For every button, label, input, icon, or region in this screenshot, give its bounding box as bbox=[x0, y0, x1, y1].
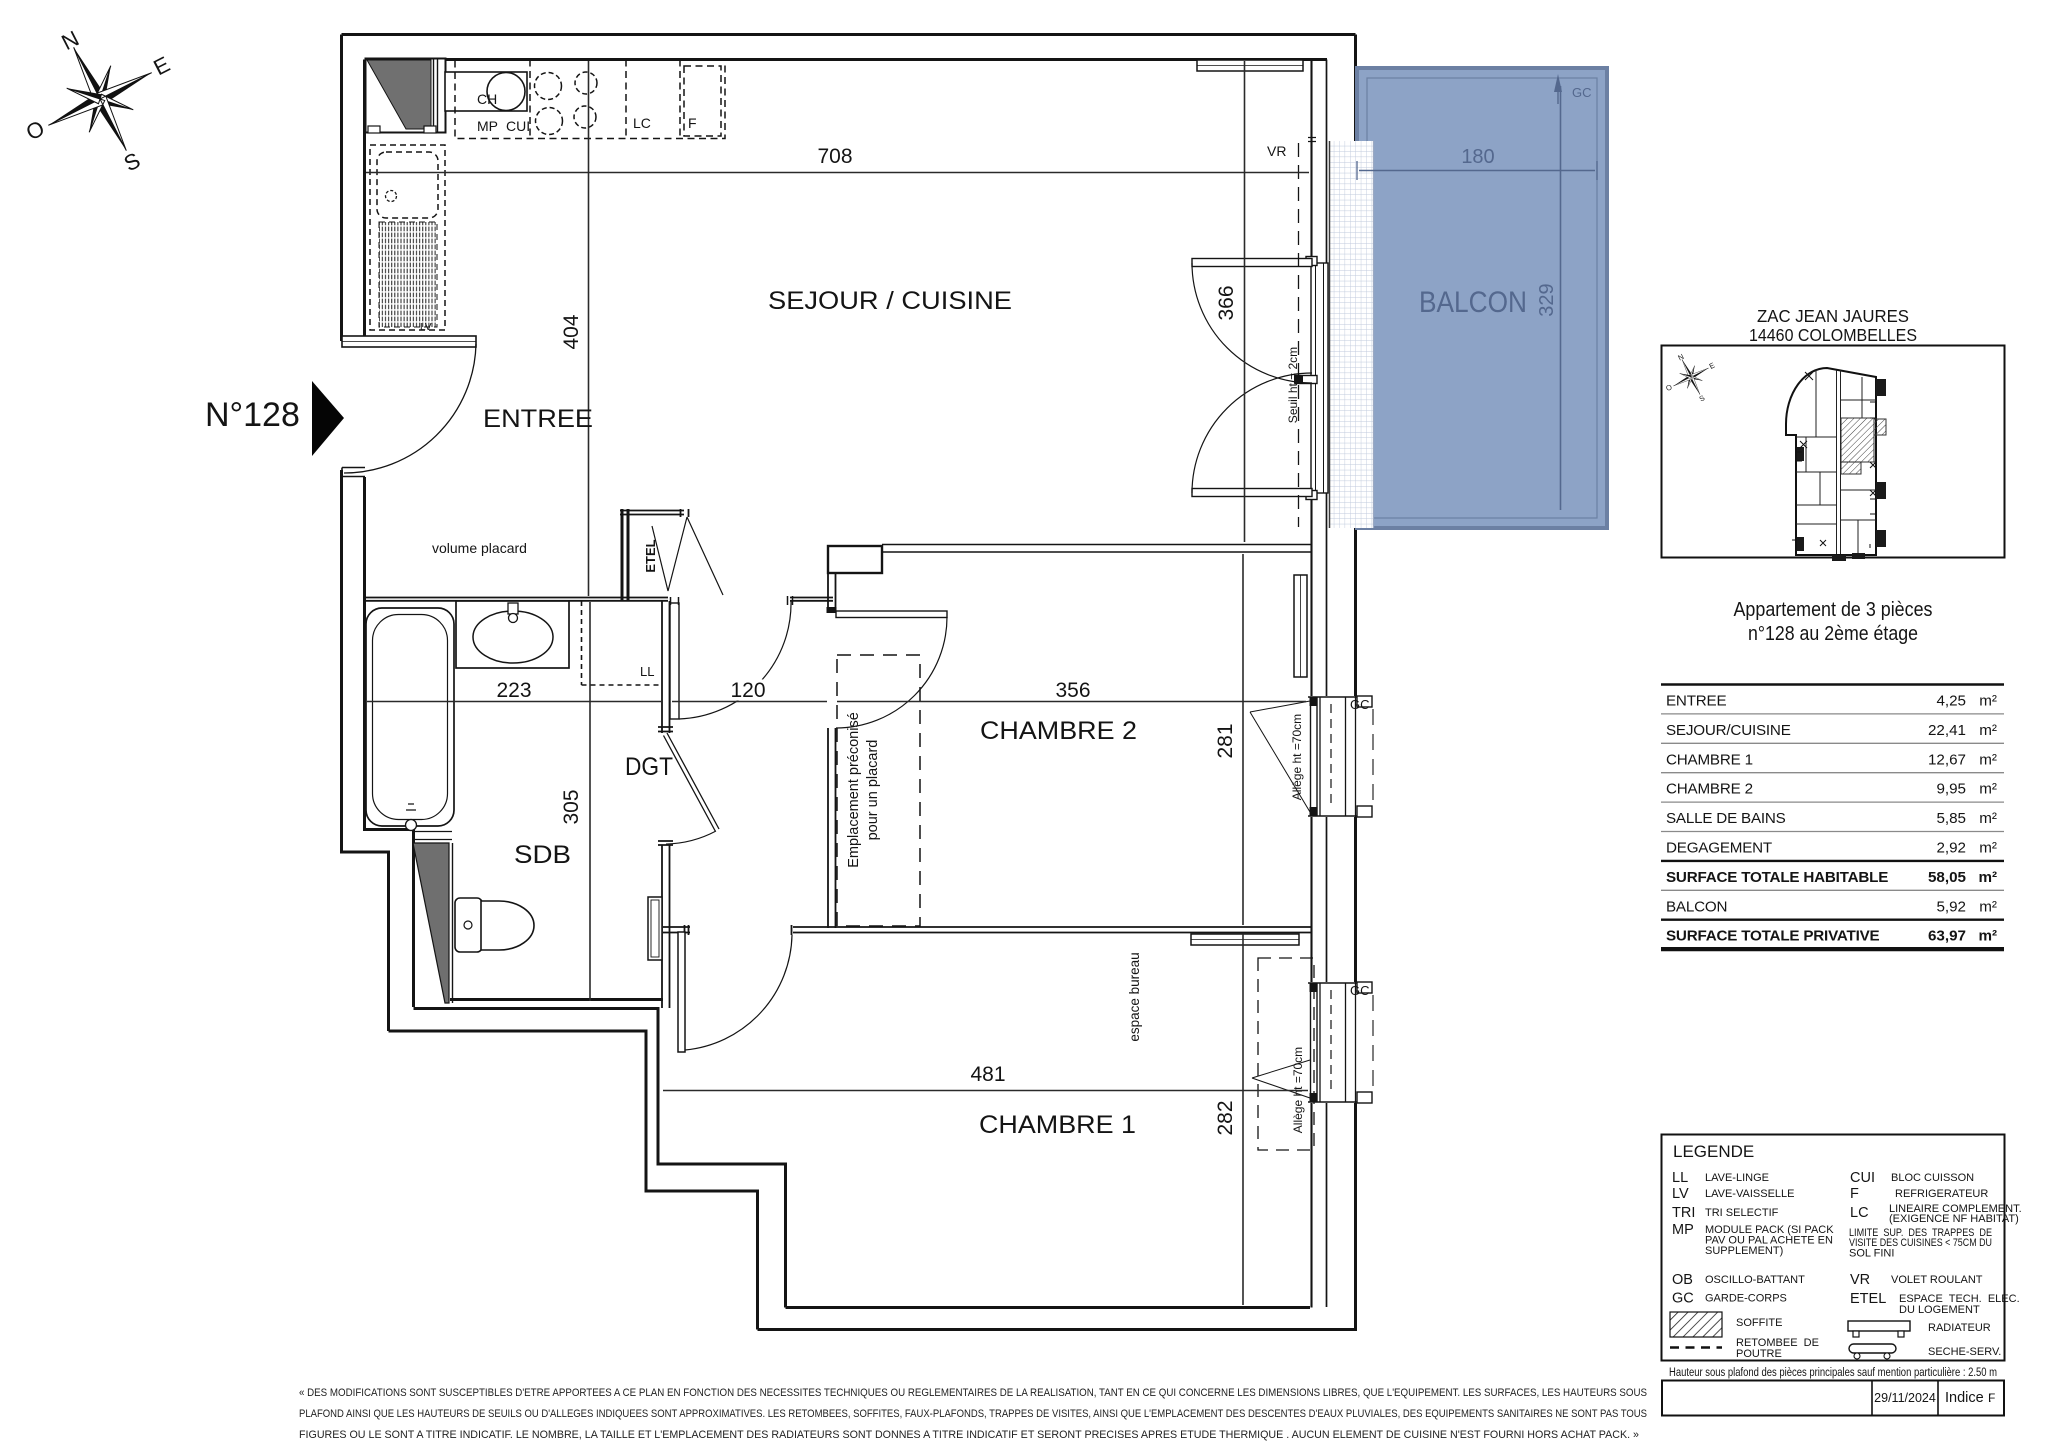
svg-text:180: 180 bbox=[1461, 146, 1494, 168]
svg-text:SURFACE TOTALE HABITABLE: SURFACE TOTALE HABITABLE bbox=[1666, 869, 1888, 886]
svg-text:POUTRE: POUTRE bbox=[1736, 1348, 1782, 1360]
svg-text:VOLET ROULANT: VOLET ROULANT bbox=[1891, 1274, 1983, 1286]
svg-text:ZAC JEAN JAURES: ZAC JEAN JAURES bbox=[1757, 306, 1909, 326]
svg-text:m²: m² bbox=[1979, 810, 1997, 827]
svg-text:pour un placard: pour un placard bbox=[865, 740, 881, 841]
svg-text:SOL FINI: SOL FINI bbox=[1849, 1248, 1894, 1260]
svg-text:29/11/2024: 29/11/2024 bbox=[1874, 1391, 1936, 1405]
svg-text:CH: CH bbox=[477, 91, 497, 107]
svg-text:LC: LC bbox=[633, 115, 651, 131]
svg-text:305: 305 bbox=[560, 789, 583, 824]
svg-text:SOFFITE: SOFFITE bbox=[1736, 1317, 1782, 1329]
svg-text:volume placard: volume placard bbox=[432, 540, 527, 556]
svg-text:GC: GC bbox=[1350, 697, 1370, 712]
svg-text:VR: VR bbox=[1267, 143, 1286, 159]
svg-text:58,05: 58,05 bbox=[1928, 869, 1967, 886]
svg-text:GARDE-CORPS: GARDE-CORPS bbox=[1705, 1293, 1787, 1305]
svg-text:FIGURES OU LE SONT A TITRE IND: FIGURES OU LE SONT A TITRE INDICATIF. LE… bbox=[299, 1429, 1639, 1441]
svg-text:14460 COLOMBELLES: 14460 COLOMBELLES bbox=[1749, 325, 1917, 345]
svg-text:Indice :: Indice : bbox=[1945, 1390, 1992, 1406]
svg-text:DU LOGEMENT: DU LOGEMENT bbox=[1899, 1304, 1980, 1316]
svg-text:GC: GC bbox=[1672, 1291, 1694, 1307]
svg-text:ETEL: ETEL bbox=[1850, 1291, 1886, 1307]
svg-text:LEGENDE: LEGENDE bbox=[1673, 1142, 1754, 1161]
svg-text:« DES MODIFICATIONS SONT SUSCE: « DES MODIFICATIONS SONT SUSCEPTIBLES D'… bbox=[299, 1387, 1647, 1399]
svg-text:MP: MP bbox=[477, 118, 498, 134]
svg-text:Appartement de 3 pièces: Appartement de 3 pièces bbox=[1734, 598, 1933, 621]
svg-text:BALCON: BALCON bbox=[1666, 898, 1727, 915]
svg-text:281: 281 bbox=[1214, 723, 1237, 758]
svg-text:63,97: 63,97 bbox=[1928, 928, 1966, 945]
svg-text:VR: VR bbox=[1850, 1272, 1870, 1288]
svg-text:SDB: SDB bbox=[514, 841, 571, 869]
svg-text:2,92: 2,92 bbox=[1936, 840, 1966, 857]
svg-text:329: 329 bbox=[1536, 283, 1558, 316]
svg-text:SUPPLEMENT): SUPPLEMENT) bbox=[1705, 1245, 1783, 1257]
svg-text:CHAMBRE 2: CHAMBRE 2 bbox=[980, 717, 1137, 745]
svg-text:m²: m² bbox=[1979, 898, 1997, 915]
svg-text:SALLE DE BAINS: SALLE DE BAINS bbox=[1666, 810, 1786, 827]
svg-text:12,67: 12,67 bbox=[1928, 751, 1966, 768]
svg-text:espace bureau: espace bureau bbox=[1127, 952, 1142, 1041]
svg-text:m²: m² bbox=[1978, 928, 1997, 945]
svg-text:TRI: TRI bbox=[1672, 1205, 1695, 1221]
svg-text:F: F bbox=[1850, 1186, 1859, 1202]
svg-text:LAVE-VAISSELLE: LAVE-VAISSELLE bbox=[1705, 1188, 1794, 1200]
svg-text:LV: LV bbox=[420, 322, 432, 333]
svg-text:22,41: 22,41 bbox=[1928, 722, 1966, 739]
svg-text:5,92: 5,92 bbox=[1936, 898, 1966, 915]
svg-text:(EXIGENCE NF HABITAT): (EXIGENCE NF HABITAT) bbox=[1889, 1213, 2019, 1225]
svg-text:SEJOUR / CUISINE: SEJOUR / CUISINE bbox=[768, 287, 1012, 315]
svg-text:Emplacement préconisé: Emplacement préconisé bbox=[846, 712, 862, 868]
svg-text:BLOC CUISSON: BLOC CUISSON bbox=[1891, 1172, 1974, 1184]
svg-text:BALCON: BALCON bbox=[1419, 286, 1527, 319]
svg-text:366: 366 bbox=[1215, 285, 1238, 320]
svg-text:Seuil ht = 2cm: Seuil ht = 2cm bbox=[1286, 347, 1300, 423]
svg-text:m²: m² bbox=[1979, 840, 1997, 857]
svg-text:TRI SELECTIF: TRI SELECTIF bbox=[1705, 1207, 1779, 1219]
svg-text:120: 120 bbox=[730, 679, 765, 702]
svg-text:RADIATEUR: RADIATEUR bbox=[1928, 1322, 1991, 1334]
svg-text:REFRIGERATEUR: REFRIGERATEUR bbox=[1895, 1188, 1988, 1200]
svg-text:CUI: CUI bbox=[506, 118, 530, 134]
svg-text:m²: m² bbox=[1979, 722, 1997, 739]
svg-text:282: 282 bbox=[1214, 1100, 1237, 1135]
svg-text:OB: OB bbox=[1672, 1272, 1693, 1288]
svg-text:LAVE-LINGE: LAVE-LINGE bbox=[1705, 1172, 1769, 1184]
svg-text:LL: LL bbox=[1672, 1170, 1688, 1186]
svg-text:CHAMBRE 1: CHAMBRE 1 bbox=[979, 1111, 1136, 1139]
svg-text:m²: m² bbox=[1979, 781, 1997, 798]
svg-text:LC: LC bbox=[1850, 1205, 1869, 1221]
svg-text:DGT: DGT bbox=[625, 753, 673, 781]
svg-text:MP: MP bbox=[1672, 1222, 1694, 1238]
svg-text:ENTREE: ENTREE bbox=[483, 405, 593, 433]
svg-text:LV: LV bbox=[1672, 1186, 1689, 1202]
svg-text:Hauteur sous plafond des pièce: Hauteur sous plafond des pièces principa… bbox=[1669, 1365, 1997, 1379]
svg-text:DEGAGEMENT: DEGAGEMENT bbox=[1666, 840, 1772, 857]
svg-text:SEJOUR/CUISINE: SEJOUR/CUISINE bbox=[1666, 722, 1791, 739]
svg-text:481: 481 bbox=[970, 1063, 1005, 1086]
svg-text:CUI: CUI bbox=[1850, 1170, 1875, 1186]
svg-text:m²: m² bbox=[1978, 869, 1997, 886]
svg-text:CHAMBRE 2: CHAMBRE 2 bbox=[1666, 781, 1753, 798]
svg-text:223: 223 bbox=[496, 679, 531, 702]
svg-text:F: F bbox=[1988, 1391, 1995, 1405]
svg-text:ETEL: ETEL bbox=[643, 539, 658, 572]
svg-text:708: 708 bbox=[817, 145, 852, 168]
svg-text:404: 404 bbox=[560, 314, 583, 349]
svg-text:PLAFOND AINSI QUE LES HAUTEURS: PLAFOND AINSI QUE LES HAUTEURS DE SEUILS… bbox=[299, 1408, 1647, 1420]
svg-text:n°128 au 2ème étage: n°128 au 2ème étage bbox=[1748, 622, 1918, 645]
svg-text:m²: m² bbox=[1979, 751, 1997, 768]
svg-text:5,85: 5,85 bbox=[1936, 810, 1966, 827]
svg-text:4,25: 4,25 bbox=[1936, 693, 1966, 710]
svg-text:Allège ht =70cm: Allège ht =70cm bbox=[1290, 714, 1304, 800]
svg-text:N°128: N°128 bbox=[205, 396, 300, 434]
svg-text:9,95: 9,95 bbox=[1936, 781, 1966, 798]
svg-text:LL: LL bbox=[640, 664, 654, 679]
svg-text:OSCILLO-BATTANT: OSCILLO-BATTANT bbox=[1705, 1274, 1805, 1286]
svg-text:GC: GC bbox=[1572, 85, 1592, 100]
svg-text:m²: m² bbox=[1979, 693, 1997, 710]
svg-text:F: F bbox=[688, 115, 697, 131]
svg-text:SURFACE TOTALE PRIVATIVE: SURFACE TOTALE PRIVATIVE bbox=[1666, 928, 1880, 945]
svg-text:356: 356 bbox=[1055, 679, 1090, 702]
svg-text:ENTREE: ENTREE bbox=[1666, 693, 1726, 710]
svg-text:SECHE-SERV.: SECHE-SERV. bbox=[1928, 1346, 2001, 1358]
svg-text:CHAMBRE 1: CHAMBRE 1 bbox=[1666, 751, 1753, 768]
svg-text:GC: GC bbox=[1350, 983, 1370, 998]
